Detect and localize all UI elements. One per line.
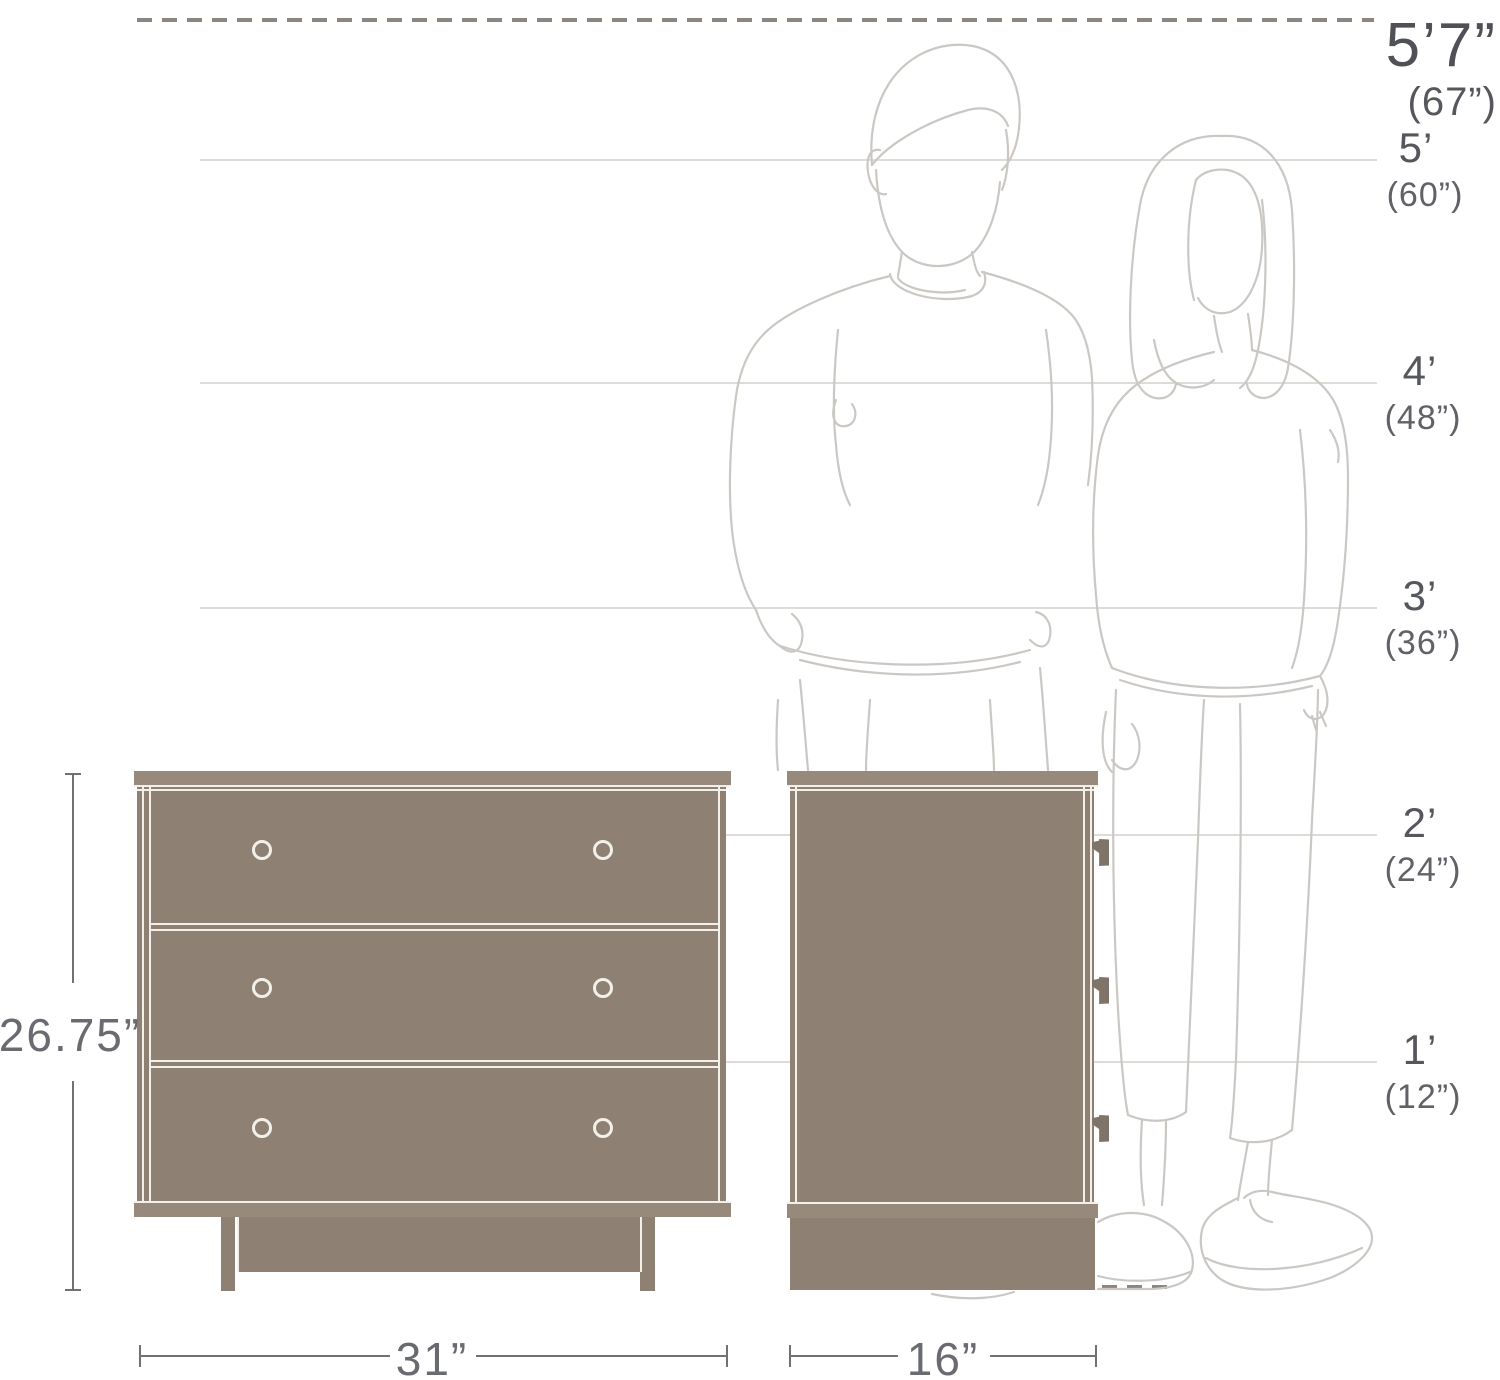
marker-5ft7-inches: (67”) xyxy=(1297,80,1497,125)
front-left-leg xyxy=(221,1217,235,1291)
drawer1-right-knob-icon xyxy=(593,840,613,860)
front-right-edge-line xyxy=(718,787,720,1201)
depth-dim-tick-right xyxy=(1095,1345,1097,1367)
height-dim-cap-top xyxy=(65,773,81,775)
width-dim-line-left xyxy=(140,1355,390,1357)
marker-4ft-inches: (48”) xyxy=(1385,399,1462,438)
height-dimension-label: 26.75” xyxy=(0,1008,150,1062)
woman-outline xyxy=(1093,136,1372,1290)
marker-1ft-inches: (12”) xyxy=(1385,1078,1462,1117)
side-base-plinth xyxy=(790,1218,1095,1290)
drawer-divider-2b xyxy=(151,1066,718,1068)
drawer2-left-knob-icon xyxy=(252,978,272,998)
drawer-divider-1a xyxy=(151,923,718,925)
width-dim-tick-left xyxy=(139,1345,141,1367)
width-dim-line-right xyxy=(476,1355,727,1357)
front-body xyxy=(137,787,726,1201)
width-dim-tick-right xyxy=(726,1345,728,1367)
marker-3ft-feet: 3’ xyxy=(1403,572,1438,620)
marker-2ft-inches: (24”) xyxy=(1385,851,1462,890)
front-left-edge-line xyxy=(142,787,144,1201)
side-top-line xyxy=(790,789,1094,791)
marker-1ft-feet: 1’ xyxy=(1403,1026,1438,1074)
drawer2-right-knob-icon xyxy=(593,978,613,998)
front-bottom-board xyxy=(134,1201,731,1217)
side-top-board xyxy=(787,771,1098,787)
depth-dim-tick-left xyxy=(789,1345,791,1367)
front-top-board xyxy=(134,771,731,787)
marker-3ft-inches: (36”) xyxy=(1385,624,1462,663)
front-top-line xyxy=(137,789,726,791)
front-base-panel xyxy=(237,1217,642,1272)
height-dim-line-lower xyxy=(72,1081,74,1290)
side-body xyxy=(790,787,1094,1202)
marker-5ft-feet: 5’ xyxy=(1399,124,1434,172)
drawer3-right-knob-icon xyxy=(593,1118,613,1138)
marker-5ft-inches: (60”) xyxy=(1387,176,1464,215)
side-left-edge-line xyxy=(795,787,797,1202)
marker-4ft-feet: 4’ xyxy=(1403,347,1438,395)
dimension-diagram: 26.75” 31” 16” 5’7” (67”) 5’ (60”) 4’ (4… xyxy=(0,0,1500,1380)
width-dimension-label: 31” xyxy=(372,1332,492,1380)
depth-dim-line-right xyxy=(990,1355,1097,1357)
side-right-edge-line xyxy=(1090,787,1092,1202)
drawer1-left-knob-icon xyxy=(252,840,272,860)
side-drawer-front-line xyxy=(1083,787,1085,1202)
drawer3-left-knob-icon xyxy=(252,1118,272,1138)
front-left-inner-line xyxy=(149,787,151,1201)
depth-dimension-label: 16” xyxy=(883,1332,1003,1380)
drawer-divider-2a xyxy=(151,1060,718,1062)
marker-5ft7-feet: 5’7” xyxy=(1297,10,1497,81)
side-bottom-board xyxy=(787,1202,1098,1218)
drawer-divider-1b xyxy=(151,929,718,931)
height-dim-cap-bottom xyxy=(65,1289,81,1291)
front-right-leg xyxy=(640,1217,655,1291)
depth-dim-line-left xyxy=(790,1355,898,1357)
marker-2ft-feet: 2’ xyxy=(1403,799,1438,847)
height-dim-line-upper xyxy=(72,775,74,983)
